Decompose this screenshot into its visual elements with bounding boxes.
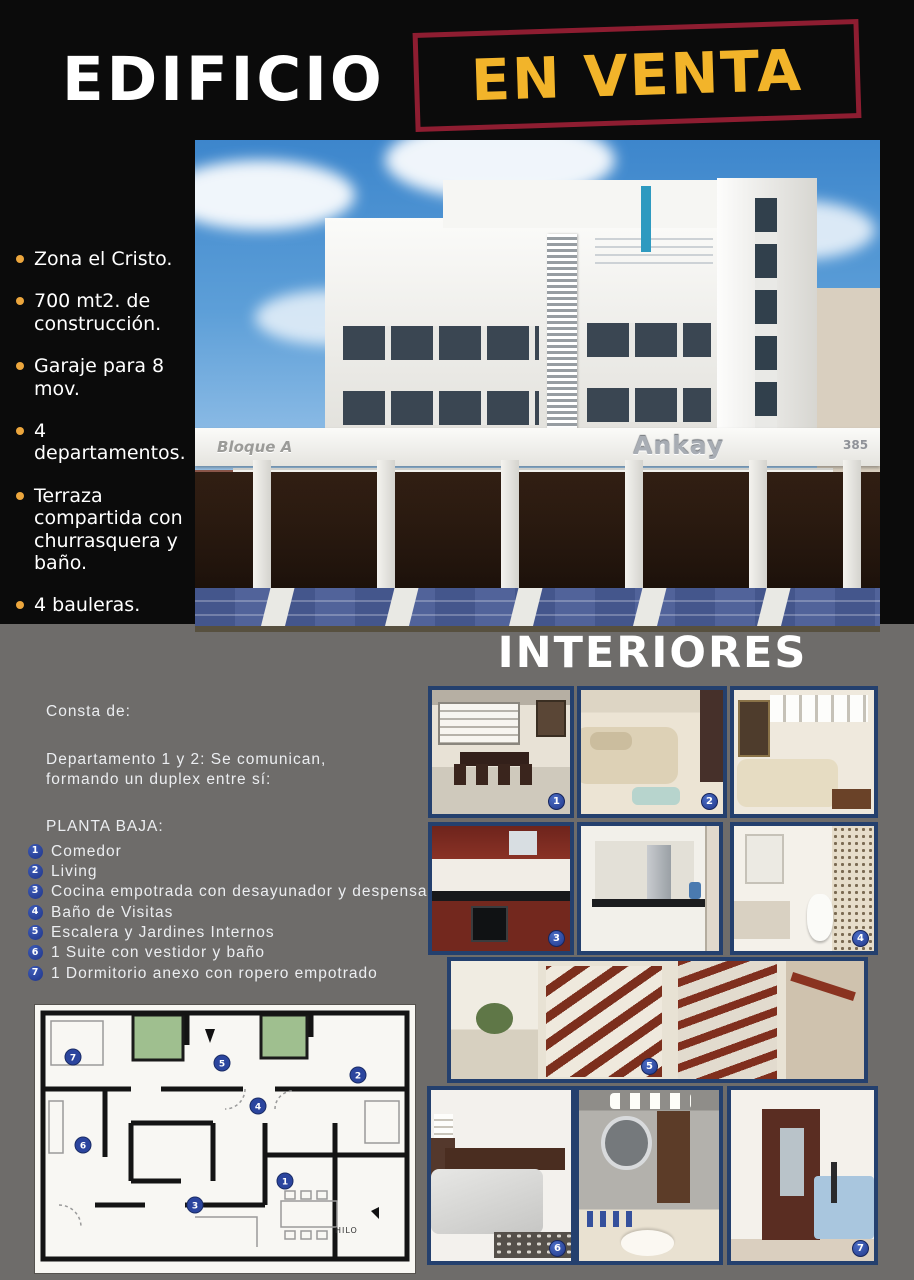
coffee-table-shape: [632, 787, 680, 806]
svg-text:3: 3: [192, 1202, 198, 1212]
number-badge: 2: [28, 864, 43, 879]
photo-number-badge: 2: [701, 793, 718, 810]
bed-shape: [814, 1176, 874, 1239]
facade-sign-band: Bloque A Ankay 385: [195, 428, 880, 466]
blue-pipe: [641, 186, 651, 252]
list-item: 2Living: [28, 863, 450, 880]
bed-frame-shape: [831, 1162, 837, 1203]
water-jug-shape: [689, 882, 701, 898]
list-item: 1Comedor: [28, 843, 450, 860]
interior-photo-kitchen-passthrough: [577, 822, 723, 955]
pillar: [749, 460, 767, 590]
interior-photo-suite-bedroom: 6: [427, 1086, 575, 1265]
flyer-poster: EDIFICIO EN VENTA Zona el Cristo. 700 mt…: [0, 0, 914, 1280]
tower-window-column: [755, 198, 777, 428]
list-item: 71 Dormitorio anexo con ropero empotrado: [28, 965, 450, 982]
interior-photo-kitchen: 3: [428, 822, 574, 955]
pillar: [253, 460, 271, 590]
number-badge: 7: [28, 966, 43, 981]
vanity-lights-shape: [610, 1093, 691, 1108]
cabinet-shape: [700, 690, 723, 782]
pillar: [377, 460, 395, 590]
svg-text:1: 1: [282, 1178, 288, 1188]
page-title: EDIFICIO: [62, 44, 385, 115]
toilet-shape: [807, 894, 834, 942]
photo-number-badge: 1: [548, 793, 565, 810]
interior-photo-living-room-2: [730, 686, 878, 818]
window-shape: [745, 834, 784, 884]
photo-number-badge: 3: [548, 930, 565, 947]
window-shape: [438, 702, 521, 744]
interior-photo-guest-bathroom: 4: [730, 822, 878, 955]
opening-shape: [595, 841, 694, 899]
list-item: Garaje para 8 mov.: [16, 355, 196, 400]
interiors-title: INTERIORES: [425, 628, 880, 678]
planta-baja-heading: PLANTA BAJA:: [46, 817, 450, 837]
photo-number-badge: 4: [852, 930, 869, 947]
intro-line: Consta de:: [46, 702, 450, 722]
interior-photo-stairs: 5: [447, 957, 868, 1083]
list-item: Terraza compartida con churrasquera y ba…: [16, 485, 196, 575]
window-row: [343, 391, 539, 425]
duplex-line-1: Departamento 1 y 2: Se comunican,: [46, 750, 450, 770]
number-badge: 3: [28, 884, 43, 899]
terrace-railing: [595, 238, 713, 264]
pillar: [501, 460, 519, 590]
countertop-shape: [432, 891, 570, 901]
interior-photo-suite-bathroom: [575, 1086, 723, 1265]
door-shape: [705, 826, 719, 951]
window-row: [587, 388, 711, 422]
list-item: 4 departamentos.: [16, 420, 196, 465]
counter-shape: [592, 899, 705, 908]
list-item: 3Cocina empotrada con desayunador y desp…: [28, 883, 450, 900]
en-venta-badge-box: EN VENTA: [413, 19, 862, 132]
list-item: 700 mt2. de construcción.: [16, 290, 196, 335]
coffee-table-shape: [832, 789, 871, 809]
photo-number-badge: 6: [549, 1240, 566, 1257]
louver-strip: [547, 234, 577, 430]
bed-shape: [431, 1169, 543, 1234]
building-penthouse: [443, 180, 717, 228]
bullet-dot-icon: [16, 427, 24, 435]
interior-photo-living-room: 2: [577, 686, 727, 818]
bullet-dot-icon: [16, 492, 24, 500]
wardrobe-mirror-shape: [780, 1128, 804, 1196]
list-item: 61 Suite con vestidor y baño: [28, 944, 450, 961]
svg-text:6: 6: [80, 1142, 86, 1152]
list-item: Zona el Cristo.: [16, 248, 196, 270]
description-block: Consta de: Departamento 1 y 2: Se comuni…: [46, 702, 450, 985]
bloque-a-sign: Bloque A: [217, 438, 292, 456]
upper-cabinets-shape: [432, 826, 570, 859]
oven-shape: [471, 906, 508, 942]
toiletries-shape: [587, 1211, 635, 1226]
window-row: [587, 323, 711, 357]
pillar: [625, 460, 643, 590]
bullet-dot-icon: [16, 362, 24, 370]
number-badge: 4: [28, 905, 43, 920]
plan-note: HILO: [335, 1226, 358, 1235]
chairs-shape: [454, 764, 534, 785]
number-badge: 6: [28, 945, 43, 960]
floor-plan: HILO 7 5 2 4 6 3 1: [35, 1005, 415, 1273]
glass-cabinet-shape: [509, 831, 537, 855]
building-exterior-photo: Bloque A Ankay 385: [195, 140, 880, 632]
interior-photo-dining-room: 1: [428, 686, 574, 818]
mirrored-door-shape: [657, 1111, 689, 1203]
headboard-shape: [445, 1148, 565, 1170]
plant-shape: [476, 1003, 513, 1034]
photo-number-badge: 7: [852, 1240, 869, 1257]
sink-shape: [621, 1230, 674, 1256]
list-item: 4Baño de Visitas: [28, 904, 450, 921]
painting-shape: [738, 700, 770, 757]
patio-green-area: [261, 1015, 307, 1058]
svg-text:7: 7: [70, 1054, 76, 1064]
list-item: 5Escalera y Jardines Internos: [28, 924, 450, 941]
number-badge: 5: [28, 925, 43, 940]
bullet-dot-icon: [16, 601, 24, 609]
clerestory-windows-shape: [770, 695, 868, 722]
painting-shape: [536, 700, 566, 737]
number-badge: 1: [28, 844, 43, 859]
list-item: 4 bauleras.: [16, 594, 196, 616]
fridge-shape: [647, 845, 670, 899]
feature-list: Zona el Cristo. 700 mt2. de construcción…: [16, 248, 196, 637]
garage-doors: [195, 472, 880, 588]
bullet-dot-icon: [16, 255, 24, 263]
bullet-dot-icon: [16, 297, 24, 305]
svg-text:2: 2: [355, 1072, 361, 1082]
oval-mirror-shape: [601, 1116, 651, 1171]
cushion-shape: [590, 732, 633, 749]
photo-number-badge: 5: [641, 1058, 658, 1075]
vanity-shape: [734, 901, 790, 939]
svg-text:4: 4: [255, 1103, 261, 1113]
interior-photo-annex-bedroom: 7: [727, 1086, 878, 1265]
sofa-shape: [737, 759, 838, 806]
duplex-line-2: formando un duplex entre sí:: [46, 770, 450, 790]
ankay-sign: Ankay: [633, 431, 724, 460]
window-row: [343, 326, 539, 360]
planta-baja-list: 1Comedor 2Living 3Cocina empotrada con d…: [28, 843, 450, 983]
staircase-shape: [678, 961, 777, 1079]
street-number-sign: 385: [843, 438, 868, 452]
svg-text:5: 5: [219, 1060, 225, 1070]
en-venta-label: EN VENTA: [470, 37, 804, 113]
patio-green-area: [133, 1015, 183, 1060]
pillar: [843, 460, 861, 590]
